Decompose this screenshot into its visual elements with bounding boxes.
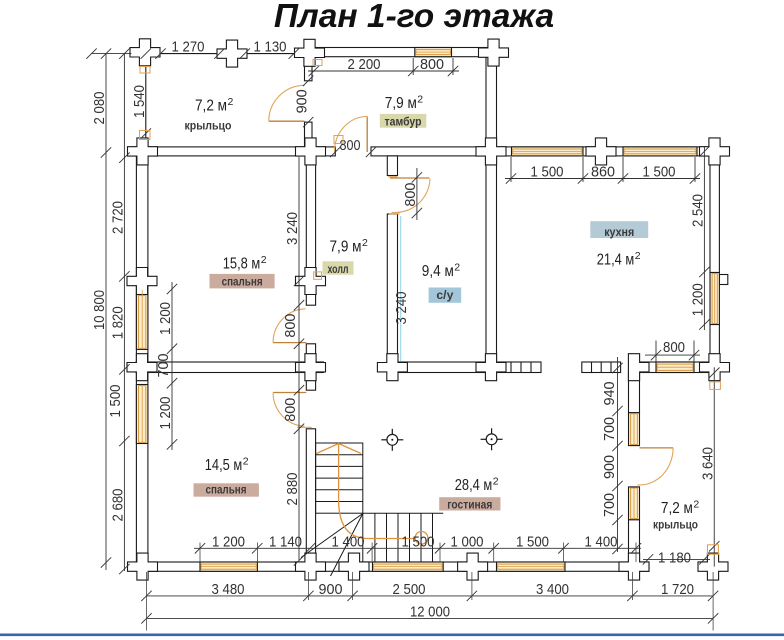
svg-text:700: 700 xyxy=(601,493,618,517)
svg-text:3 400: 3 400 xyxy=(536,581,569,598)
svg-text:900: 900 xyxy=(601,455,618,479)
svg-text:2: 2 xyxy=(228,96,234,108)
svg-text:3 640: 3 640 xyxy=(699,447,716,480)
svg-text:2 080: 2 080 xyxy=(91,91,108,124)
svg-text:2 500: 2 500 xyxy=(393,581,426,598)
svg-text:860: 860 xyxy=(591,164,615,181)
svg-text:1 540: 1 540 xyxy=(131,85,148,118)
svg-text:3 240: 3 240 xyxy=(284,212,301,245)
svg-text:крыльцо: крыльцо xyxy=(653,520,698,532)
svg-text:2: 2 xyxy=(417,94,423,106)
svg-text:3 480: 3 480 xyxy=(212,581,245,598)
svg-text:12 000: 12 000 xyxy=(410,603,450,620)
svg-text:тамбур: тамбур xyxy=(385,117,422,129)
svg-text:1 200: 1 200 xyxy=(157,302,174,335)
svg-text:1 180: 1 180 xyxy=(658,550,691,567)
svg-text:2: 2 xyxy=(493,476,499,488)
svg-text:7,2 м: 7,2 м xyxy=(195,98,227,115)
svg-text:15,8 м: 15,8 м xyxy=(223,256,261,273)
svg-text:2 200: 2 200 xyxy=(348,56,381,73)
svg-text:800: 800 xyxy=(663,339,685,356)
svg-text:800: 800 xyxy=(282,314,299,338)
svg-text:гостиная: гостиная xyxy=(447,499,492,511)
svg-text:2 680: 2 680 xyxy=(110,489,127,522)
svg-text:спальня: спальня xyxy=(206,485,247,497)
svg-text:1 500: 1 500 xyxy=(516,533,549,550)
svg-text:940: 940 xyxy=(601,382,618,406)
svg-text:700: 700 xyxy=(155,354,172,378)
svg-text:1 500: 1 500 xyxy=(107,385,124,418)
svg-text:1 820: 1 820 xyxy=(110,306,127,339)
svg-text:900: 900 xyxy=(319,581,343,598)
svg-text:1 500: 1 500 xyxy=(402,533,435,550)
svg-text:14,5 м: 14,5 м xyxy=(205,457,243,474)
svg-text:кухня: кухня xyxy=(604,227,634,239)
svg-text:1 130: 1 130 xyxy=(254,39,287,56)
svg-text:7,9 м: 7,9 м xyxy=(330,239,362,256)
svg-text:2: 2 xyxy=(635,250,641,262)
svg-text:21,4 м: 21,4 м xyxy=(597,251,635,268)
svg-text:2: 2 xyxy=(243,456,249,468)
svg-text:1 500: 1 500 xyxy=(531,164,564,181)
svg-text:800: 800 xyxy=(282,398,299,422)
svg-text:9,4 м: 9,4 м xyxy=(422,263,454,280)
svg-text:700: 700 xyxy=(601,417,618,441)
svg-text:1 400: 1 400 xyxy=(585,533,618,550)
svg-text:1 140: 1 140 xyxy=(269,533,302,550)
svg-text:План 1-го этажа: План 1-го этажа xyxy=(274,0,554,35)
svg-text:7,2 м: 7,2 м xyxy=(661,500,693,517)
svg-text:1 000: 1 000 xyxy=(451,533,484,550)
svg-text:800: 800 xyxy=(402,183,419,207)
svg-text:28,4 м: 28,4 м xyxy=(455,477,493,494)
svg-text:2: 2 xyxy=(454,262,460,274)
svg-text:1 200: 1 200 xyxy=(157,397,174,430)
svg-text:холл: холл xyxy=(328,264,349,276)
svg-text:7,9 м: 7,9 м xyxy=(385,95,417,112)
svg-text:2: 2 xyxy=(362,237,368,249)
svg-text:2: 2 xyxy=(693,499,699,511)
svg-text:с/у: с/у xyxy=(436,290,454,302)
svg-text:10 800: 10 800 xyxy=(91,290,108,330)
svg-text:2 720: 2 720 xyxy=(110,201,127,234)
svg-text:1 200: 1 200 xyxy=(690,283,707,316)
svg-text:1 400: 1 400 xyxy=(332,533,365,550)
svg-text:2: 2 xyxy=(261,254,267,266)
svg-text:2 880: 2 880 xyxy=(284,473,301,506)
svg-text:2 540: 2 540 xyxy=(690,194,707,227)
svg-text:900: 900 xyxy=(293,89,310,113)
svg-text:800: 800 xyxy=(420,56,444,73)
svg-text:крыльцо: крыльцо xyxy=(185,121,232,133)
svg-text:1 270: 1 270 xyxy=(172,39,205,56)
svg-text:1 200: 1 200 xyxy=(212,533,245,550)
svg-text:1 500: 1 500 xyxy=(643,164,676,181)
svg-text:1 720: 1 720 xyxy=(661,581,694,598)
svg-text:спальня: спальня xyxy=(222,277,263,289)
svg-text:3 240: 3 240 xyxy=(393,292,410,325)
